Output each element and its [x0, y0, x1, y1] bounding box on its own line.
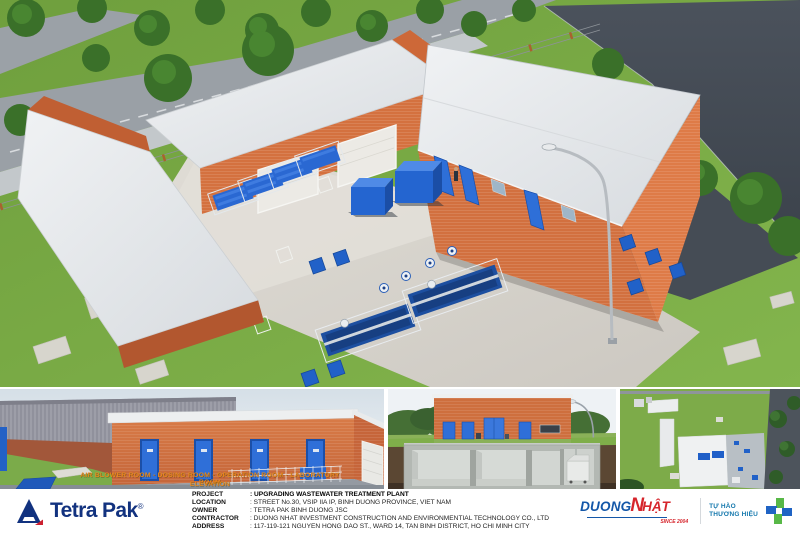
blue-edge-strip — [0, 427, 7, 471]
view-label: ELEVATION — [70, 481, 350, 488]
contractor-row: CONTRACTOR : DUONG NHAT INVESTMENT CONST… — [192, 515, 580, 523]
location-row: LOCATION : STREET No.30, VSIP IIA IP, BI… — [192, 499, 580, 507]
registered-mark: ® — [138, 502, 143, 511]
brand-name: Tetra Pak® — [50, 499, 143, 523]
site-plan-render — [620, 389, 800, 489]
slab — [670, 473, 679, 479]
section-render — [388, 389, 616, 489]
project-row: PROJECT : UPGRADING WASTEWATER TREATMENT… — [192, 491, 580, 499]
tetra-pak-logo-icon — [14, 496, 44, 526]
aerial-scene — [0, 0, 800, 387]
duong-nhat-underline — [587, 517, 668, 519]
owner-row: OWNER : TETRA PAK BINH DUONG JSC — [192, 507, 580, 515]
pride-slogan: TỰ HÀO THƯƠNG HIỆU — [709, 503, 758, 518]
duong-nhat-logo: DUONGNHẬT SINCE 2004 — [580, 497, 692, 526]
since-label: SINCE 2004 — [580, 519, 692, 525]
garage-corner-building — [352, 409, 384, 489]
site-plan-scene — [620, 389, 800, 489]
title-block: Tetra Pak® PROJECT : UPGRADING WASTEWATE… — [0, 489, 800, 533]
tetra-pak-brand: Tetra Pak® — [0, 496, 192, 526]
underground-cutaway — [388, 443, 616, 489]
project-info: PROJECT : UPGRADING WASTEWATER TREATMENT… — [192, 491, 580, 531]
person-figure — [454, 167, 458, 181]
building-section — [432, 394, 573, 439]
slab — [716, 417, 723, 422]
logo-divider — [700, 498, 701, 524]
main-aerial-render — [0, 0, 800, 387]
presentation-board: AIR BLOWER ROOM - DOSING ROOM - OPERATIO… — [0, 0, 800, 533]
elevation-render: AIR BLOWER ROOM - DOSING ROOM - OPERATIO… — [0, 389, 384, 489]
address-row: ADDRESS : 117-119-121 NGUYEN HONG DAO ST… — [192, 523, 580, 531]
partner-logos: DUONGNHẬT SINCE 2004 TỰ HÀO THƯƠNG HIỆU — [580, 497, 800, 526]
pinwheel-logo-icon — [766, 498, 792, 524]
pad-plan — [726, 433, 766, 489]
section-scene — [388, 389, 616, 489]
